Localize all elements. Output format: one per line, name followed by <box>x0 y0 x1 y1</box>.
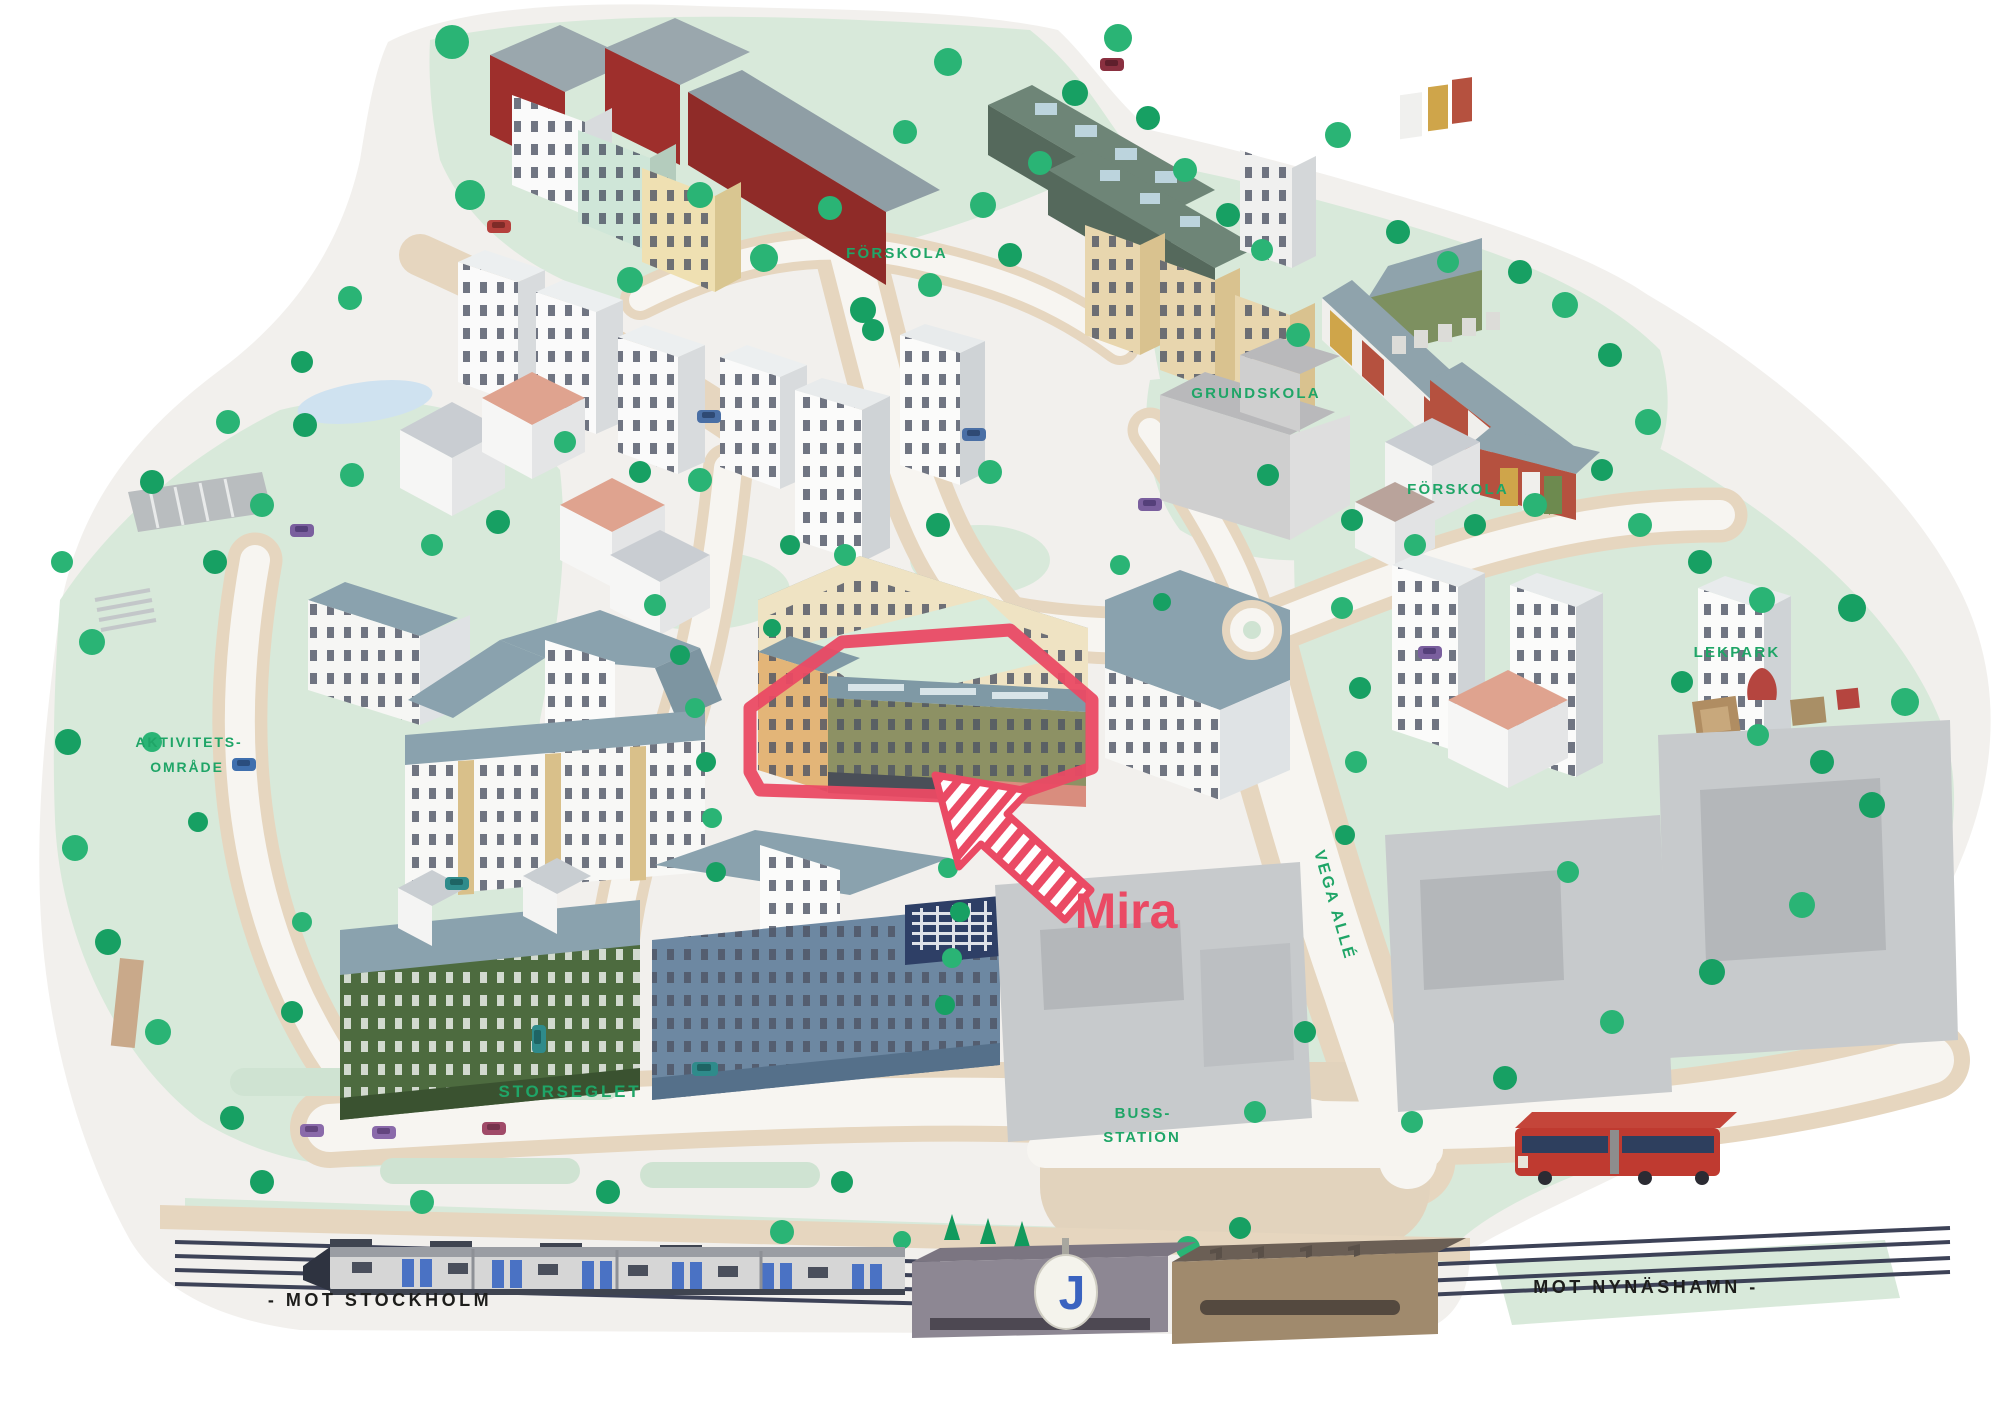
label-mot-stockholm: - MOT STOCKHOLM <box>268 1290 492 1310</box>
commuter-train <box>303 1239 905 1295</box>
label-buss-line2: STATION <box>1103 1129 1181 1146</box>
map-canvas: J FÖRSKOLA GRUNDSKOLA FÖRSKOLA LEKPARK A… <box>0 0 2000 1408</box>
label-aktivitets-line2: OMRÅDE <box>150 759 224 775</box>
j-logo-letter: J <box>1059 1267 1086 1320</box>
label-buss-line1: BUSS- <box>1115 1105 1172 1122</box>
roundabout <box>1226 604 1278 656</box>
label-aktivitets-line1: AKTIVITETS- <box>135 734 242 750</box>
label-mot-nynashamn: MOT NYNÄSHAMN - <box>1533 1277 1759 1297</box>
bus <box>1515 1112 1737 1185</box>
station-platform <box>1172 1238 1466 1344</box>
label-forskola-east: FÖRSKOLA <box>1407 481 1509 498</box>
label-grundskola: GRUNDSKOLA <box>1191 385 1321 402</box>
label-forskola-top: FÖRSKOLA <box>846 245 948 262</box>
car <box>487 220 511 233</box>
label-mira: Mira <box>1075 883 1179 939</box>
label-storseglet: STORSEGLET <box>499 1082 642 1101</box>
label-lekpark: LEKPARK <box>1694 644 1781 661</box>
